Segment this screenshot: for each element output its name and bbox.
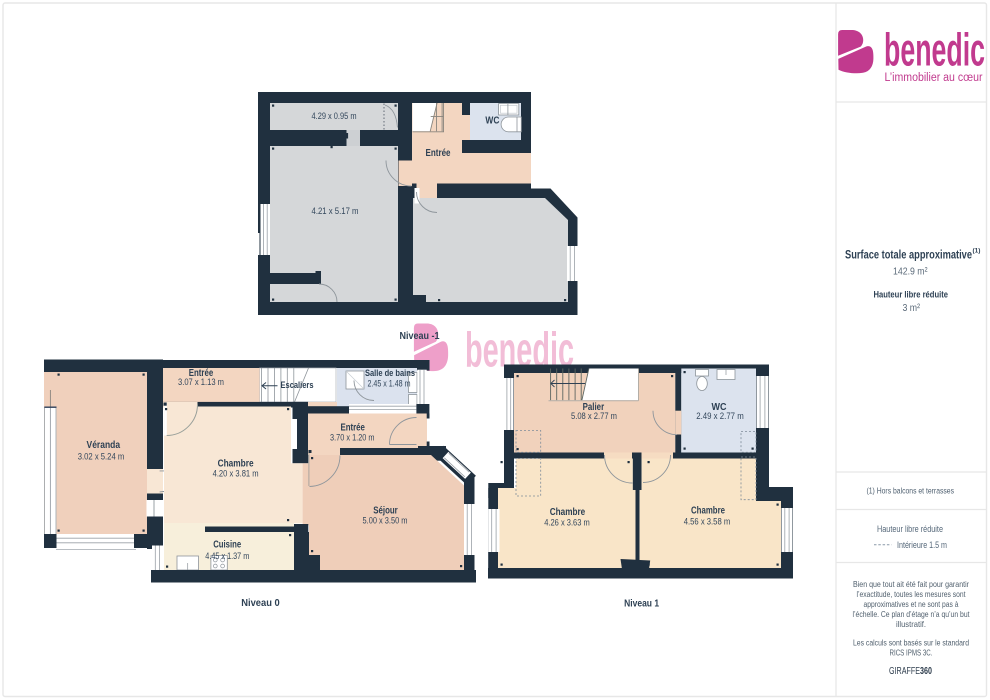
svg-text:WC: WC	[485, 116, 499, 127]
svg-text:L’immobilier au cœur: L’immobilier au cœur	[885, 72, 983, 84]
svg-text:Niveau 0: Niveau 0	[241, 597, 280, 609]
svg-text:Intérieure 1.5 m: Intérieure 1.5 m	[897, 540, 947, 550]
svg-text:Niveau 1: Niveau 1	[624, 598, 659, 610]
svg-text:Les calculs sont basés sur le: Les calculs sont basés sur le standard	[853, 638, 969, 648]
svg-text:Chambre: Chambre	[691, 506, 725, 517]
svg-text:3.07 x 1.13 m: 3.07 x 1.13 m	[178, 377, 224, 387]
svg-text:Véranda: Véranda	[87, 440, 121, 451]
svg-text:4.20 x 3.81 m: 4.20 x 3.81 m	[213, 468, 259, 478]
svg-text:Salle de bains: Salle de bains	[365, 368, 415, 379]
svg-text:2.49 x 2.77 m: 2.49 x 2.77 m	[696, 411, 744, 421]
svg-text:l’échelle. Ce plan d’étage n’a: l’échelle. Ce plan d’étage n’a qu’un but	[853, 609, 970, 619]
svg-text:benedic: benedic	[884, 24, 985, 76]
svg-text:GIRAFFE360: GIRAFFE360	[889, 666, 932, 677]
svg-text:Hauteur libre réduite: Hauteur libre réduite	[877, 524, 943, 534]
svg-text:5.00 x 3.50 m: 5.00 x 3.50 m	[363, 516, 408, 526]
svg-text:l’exactitude, toutes les mesur: l’exactitude, toutes les mesures sont	[857, 589, 966, 599]
svg-text:3.70 x 1.20 m: 3.70 x 1.20 m	[330, 433, 375, 443]
svg-text:Bien que tout ait été fait pou: Bien que tout ait été fait pour garantir	[853, 579, 969, 589]
svg-text:4.26 x 3.63 m: 4.26 x 3.63 m	[544, 518, 590, 528]
svg-text:142.9 m²: 142.9 m²	[893, 266, 928, 278]
svg-text:4.45 x 1.37 m: 4.45 x 1.37 m	[205, 551, 249, 561]
svg-text:Cuisine: Cuisine	[213, 539, 241, 550]
svg-text:Hauteur libre réduite: Hauteur libre réduite	[874, 290, 949, 300]
svg-text:3 m²: 3 m²	[903, 303, 921, 314]
svg-text:2.45 x 1.48 m: 2.45 x 1.48 m	[368, 378, 411, 388]
svg-text:5.08 x 2.77 m: 5.08 x 2.77 m	[571, 411, 617, 421]
svg-text:Surface totale approximative: Surface totale approximative	[845, 248, 972, 262]
svg-text:(1): (1)	[973, 248, 981, 255]
svg-text:3.02 x 5.24 m: 3.02 x 5.24 m	[78, 451, 125, 461]
svg-text:4.56 x 3.58 m: 4.56 x 3.58 m	[684, 517, 731, 527]
svg-text:Entrée: Entrée	[426, 148, 451, 159]
svg-text:Escaliers: Escaliers	[281, 380, 314, 391]
svg-text:RICS IPMS 3C.: RICS IPMS 3C.	[890, 648, 933, 658]
svg-text:illustratif.: illustratif.	[896, 619, 926, 629]
svg-text:4.21 x 5.17 m: 4.21 x 5.17 m	[312, 206, 359, 217]
svg-text:4.29 x 0.95 m: 4.29 x 0.95 m	[312, 111, 357, 122]
svg-text:(1) Hors balcons et terrasses: (1) Hors balcons et terrasses	[867, 486, 955, 496]
svg-text:Niveau -1: Niveau -1	[400, 330, 440, 342]
svg-text:approximatives et ne sont pas: approximatives et ne sont pas à	[864, 599, 959, 609]
